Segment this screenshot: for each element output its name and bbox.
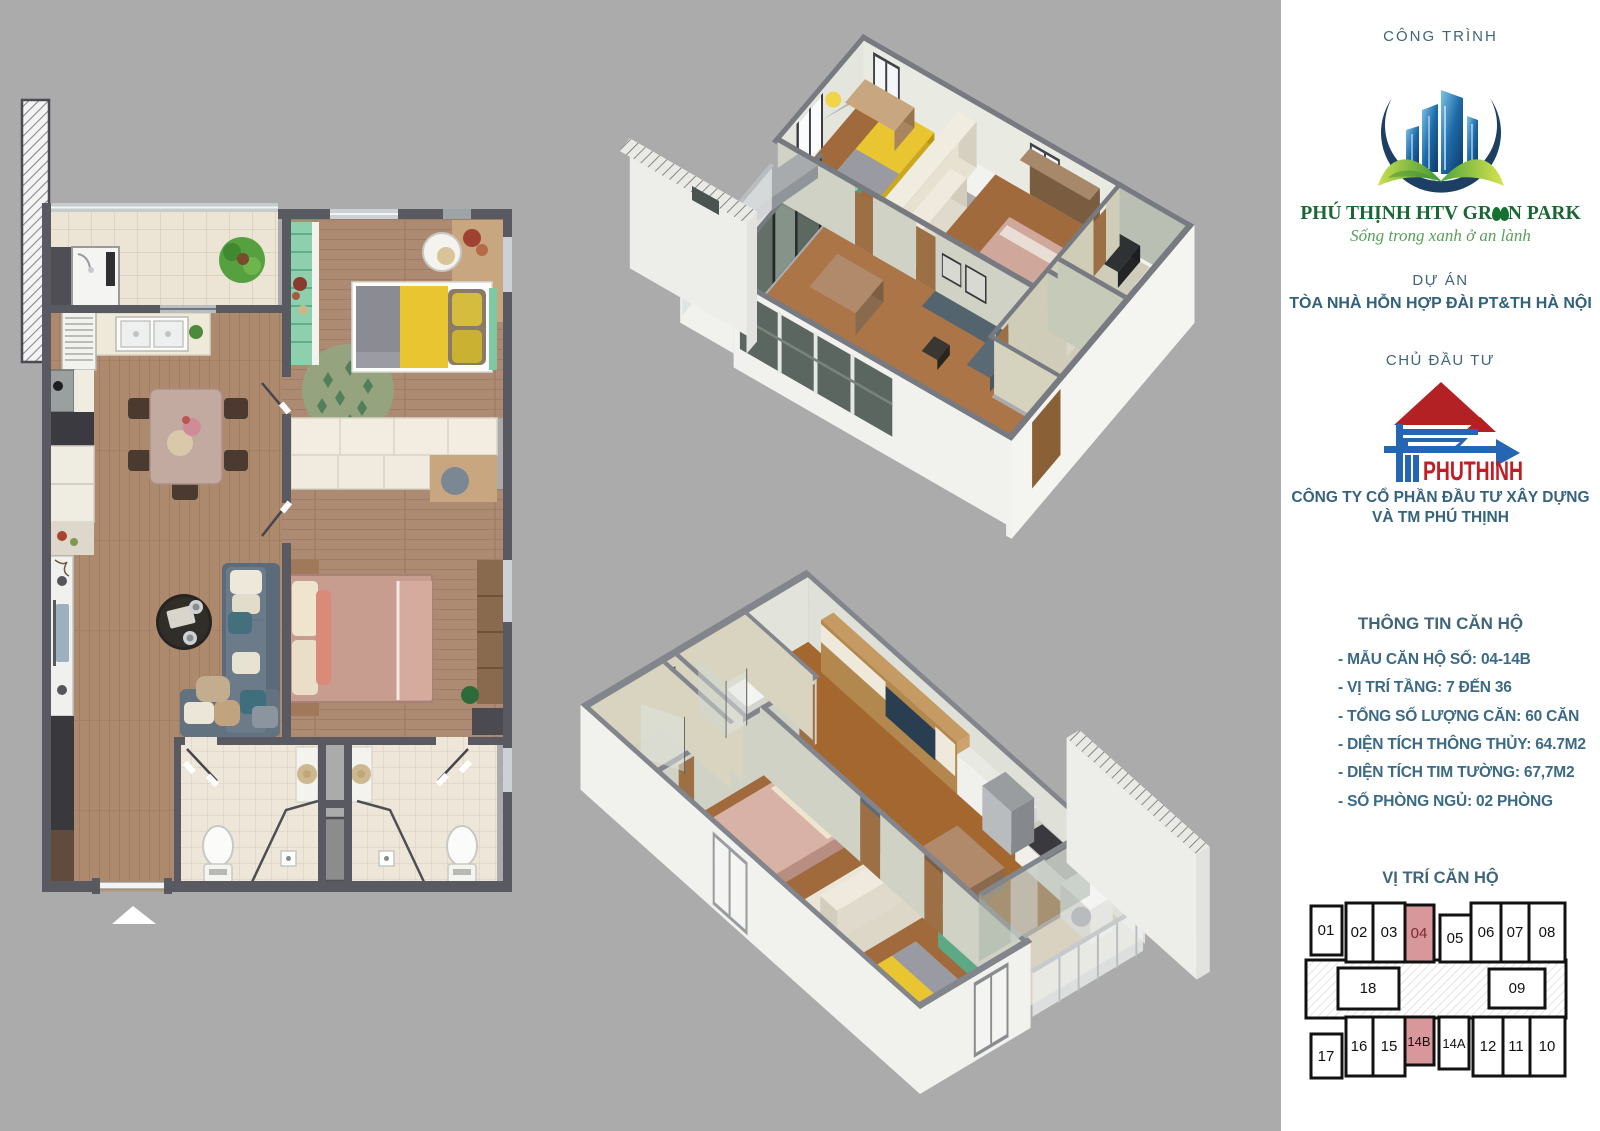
svg-text:PHUTHINH: PHUTHINH xyxy=(1423,456,1523,486)
svg-text:11: 11 xyxy=(1508,1038,1524,1055)
svg-text:09: 09 xyxy=(1509,980,1526,997)
svg-text:14B: 14B xyxy=(1407,1034,1430,1049)
svg-text:06: 06 xyxy=(1478,924,1495,941)
svg-text:15: 15 xyxy=(1381,1038,1398,1055)
svg-text:07: 07 xyxy=(1507,924,1524,941)
svg-text:04: 04 xyxy=(1411,925,1428,942)
svg-text:10: 10 xyxy=(1539,1038,1556,1055)
svg-text:02: 02 xyxy=(1351,924,1368,941)
svg-text:05: 05 xyxy=(1447,930,1464,947)
svg-text:01: 01 xyxy=(1318,922,1335,939)
svg-text:16: 16 xyxy=(1351,1038,1368,1055)
svg-text:03: 03 xyxy=(1381,924,1398,941)
svg-text:18: 18 xyxy=(1360,980,1377,997)
svg-text:14A: 14A xyxy=(1442,1036,1465,1051)
svg-text:17: 17 xyxy=(1318,1048,1335,1065)
svg-text:08: 08 xyxy=(1539,924,1556,941)
svg-text:12: 12 xyxy=(1480,1038,1497,1055)
